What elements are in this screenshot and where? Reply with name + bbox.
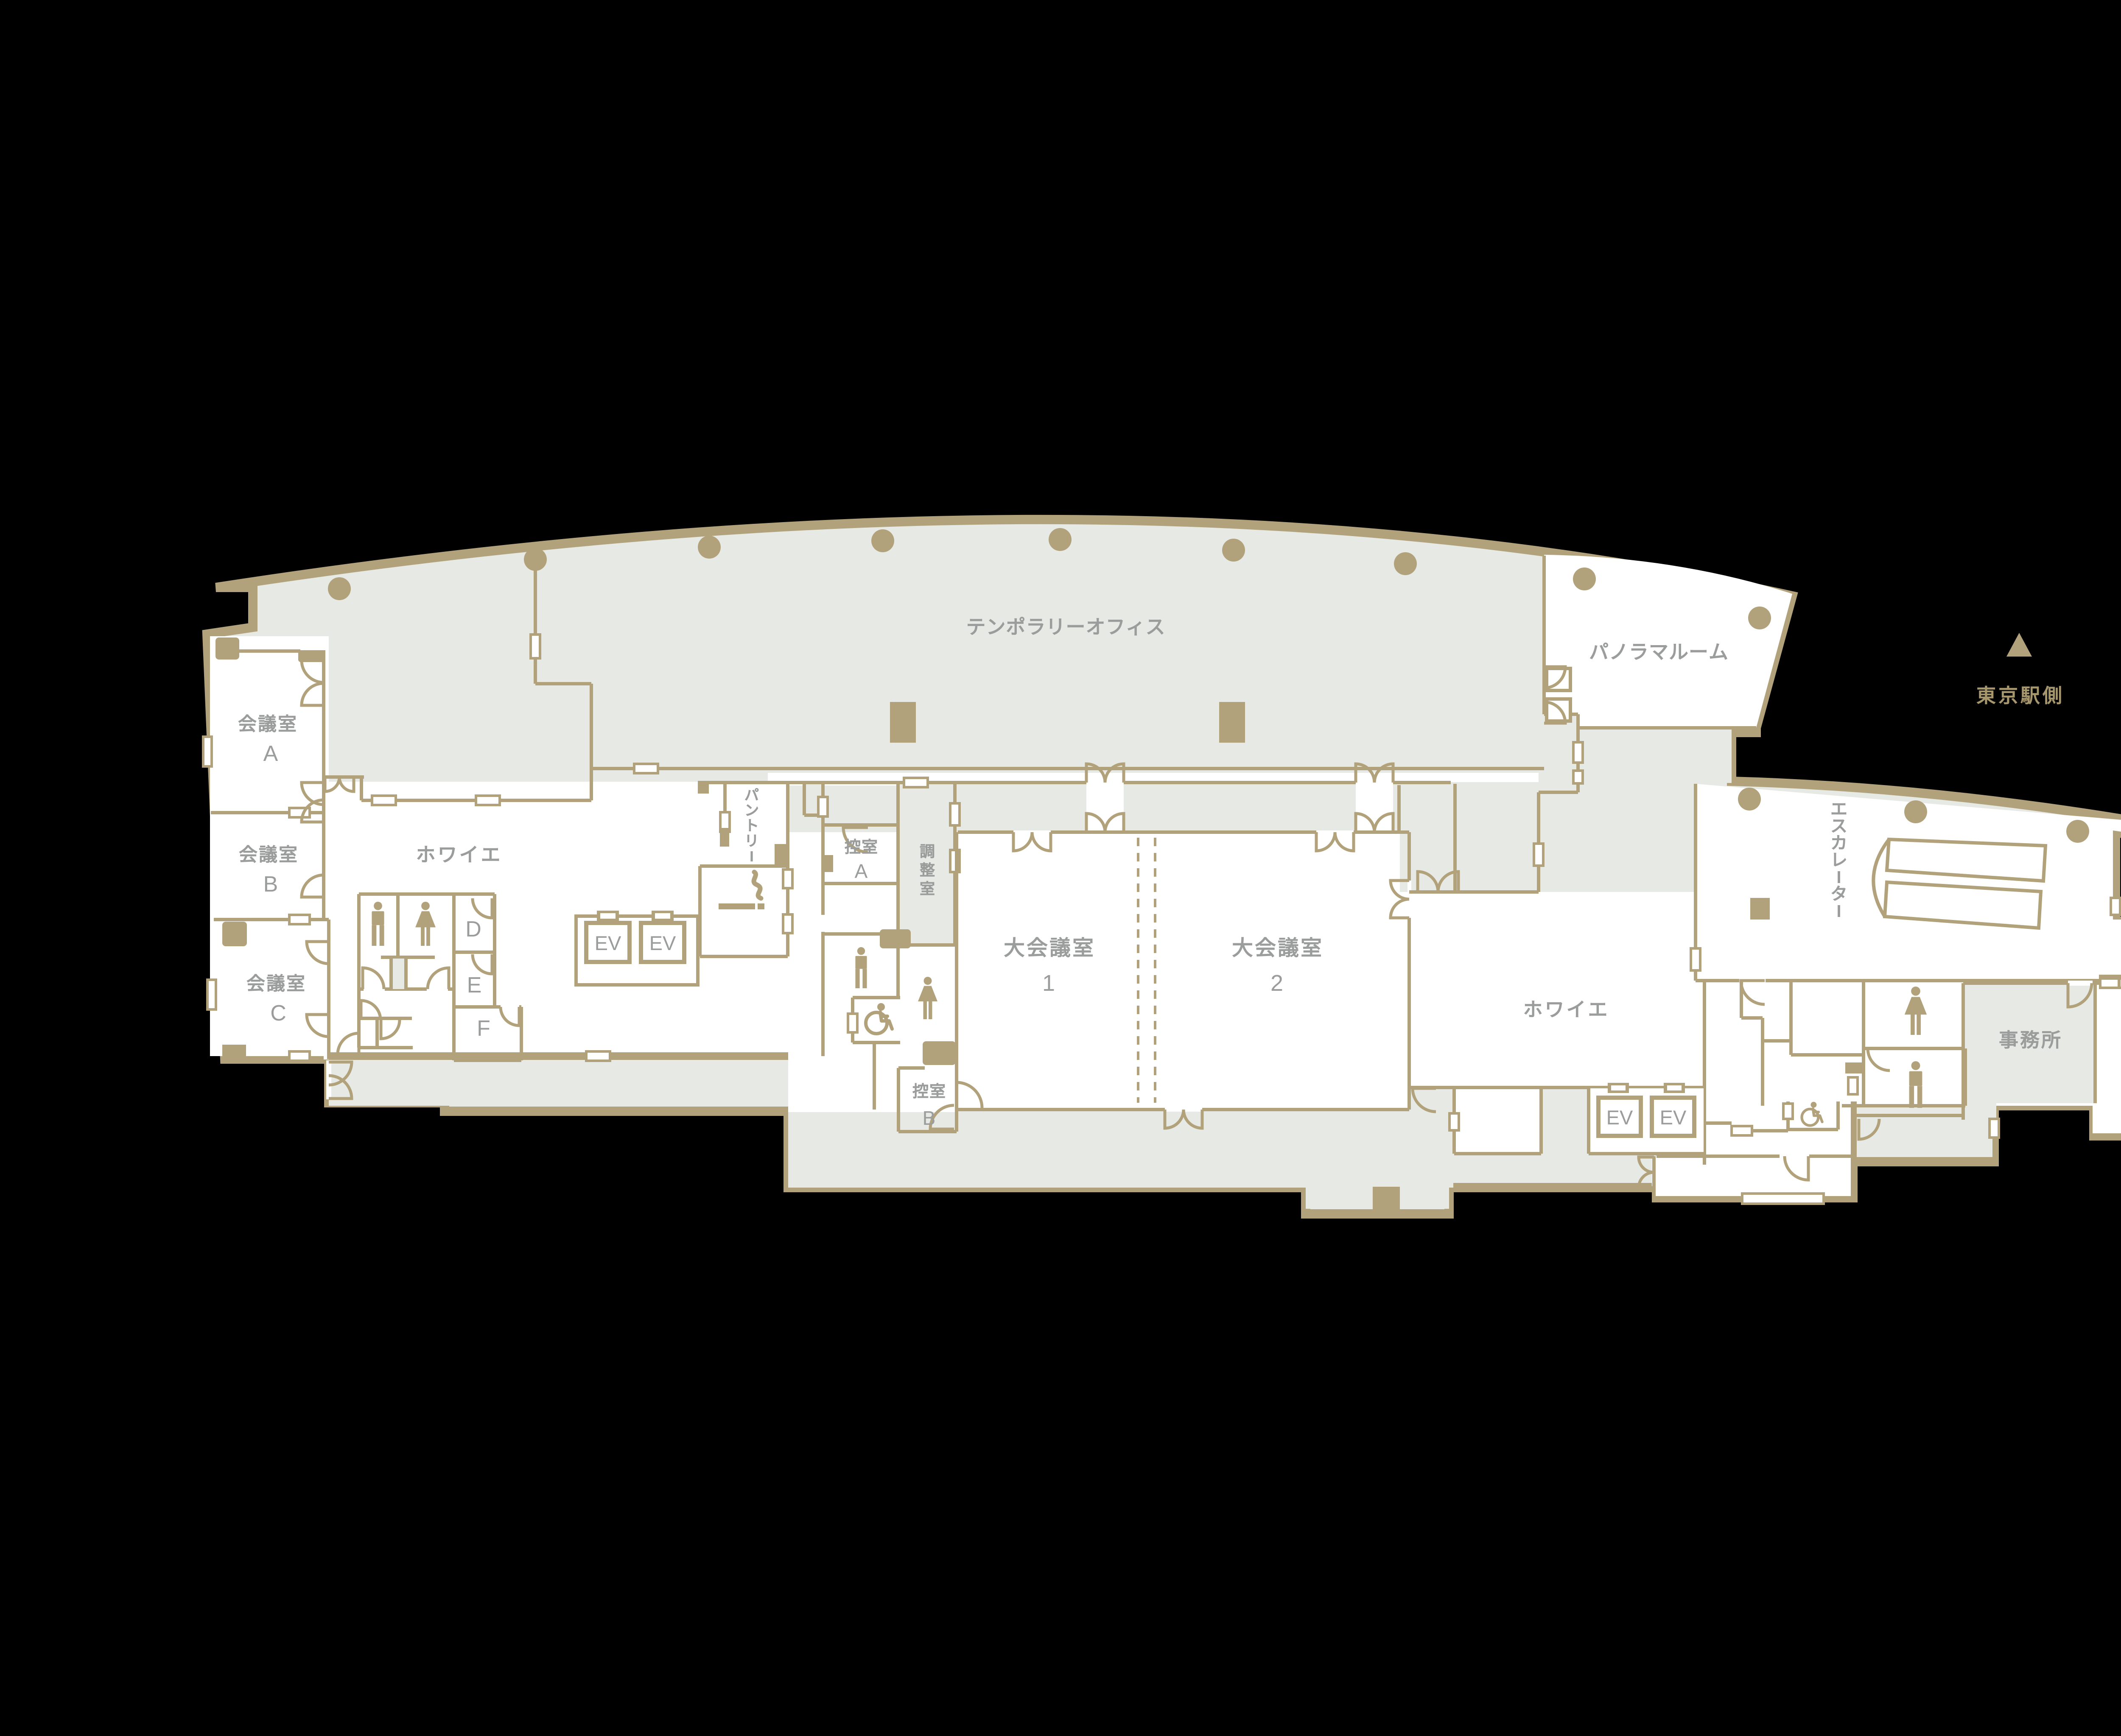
svg-text:1: 1 [1042,970,1055,996]
svg-text:A: A [263,741,278,766]
svg-text:D: D [465,917,481,942]
svg-text:EV: EV [649,932,676,954]
svg-text:EV: EV [1660,1106,1687,1129]
svg-text:EV: EV [595,932,621,954]
svg-text:B: B [263,872,278,897]
svg-text:EV: EV [1606,1106,1633,1129]
svg-text:E: E [467,973,482,998]
svg-text:B: B [923,1107,936,1129]
svg-text:A: A [855,860,868,882]
svg-text:F: F [477,1016,490,1041]
svg-text:2: 2 [1270,970,1283,996]
svg-text:C: C [270,1001,286,1026]
